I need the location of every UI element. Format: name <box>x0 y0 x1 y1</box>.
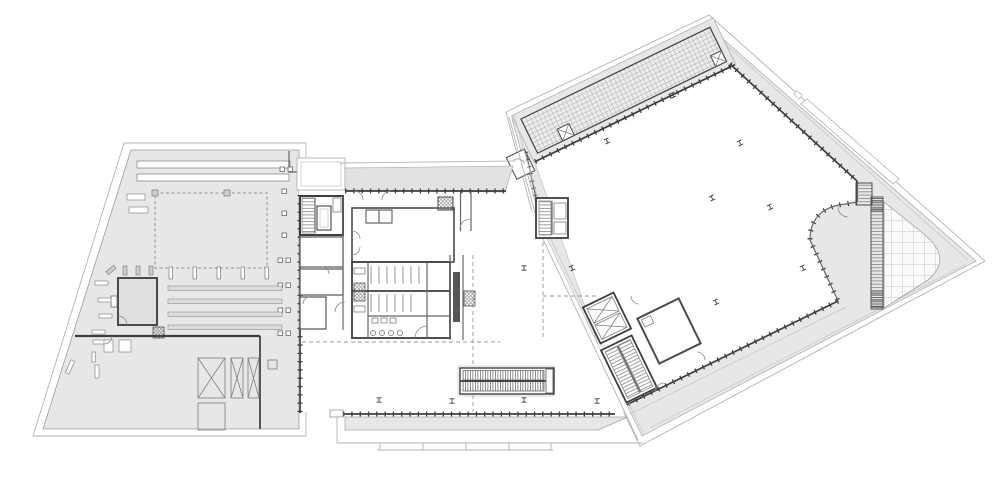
ladder-louvre-strip <box>871 197 883 309</box>
roof-post <box>123 266 127 275</box>
wall-end-block <box>330 410 343 417</box>
escalators <box>458 366 554 396</box>
restrooms <box>352 262 450 338</box>
duct-hatch <box>354 283 365 301</box>
entrance-canopy <box>345 166 513 192</box>
lift-hatch <box>438 197 453 210</box>
canopy-edge-line <box>340 161 516 163</box>
roof-post <box>136 266 140 275</box>
floor-plan-svg <box>0 0 1000 490</box>
roof-slot-bar <box>137 174 289 181</box>
central-block <box>352 208 454 262</box>
duct <box>111 296 117 307</box>
west-parcel <box>33 143 306 436</box>
corner-stair <box>856 183 872 205</box>
floor-plan-canvas <box>0 0 1000 490</box>
lower-terrace <box>345 417 628 430</box>
roof-node <box>224 190 230 196</box>
roof-post <box>149 266 153 275</box>
stair-core-a <box>300 196 343 235</box>
roof-slot-bar-small <box>127 194 145 200</box>
elevator <box>317 206 331 230</box>
roof-slot-bar-small <box>129 207 148 213</box>
stair-core-b <box>536 198 568 238</box>
entry-porch-outline <box>297 158 345 190</box>
roof-node <box>152 190 158 196</box>
roof-slot-bar <box>137 161 290 168</box>
